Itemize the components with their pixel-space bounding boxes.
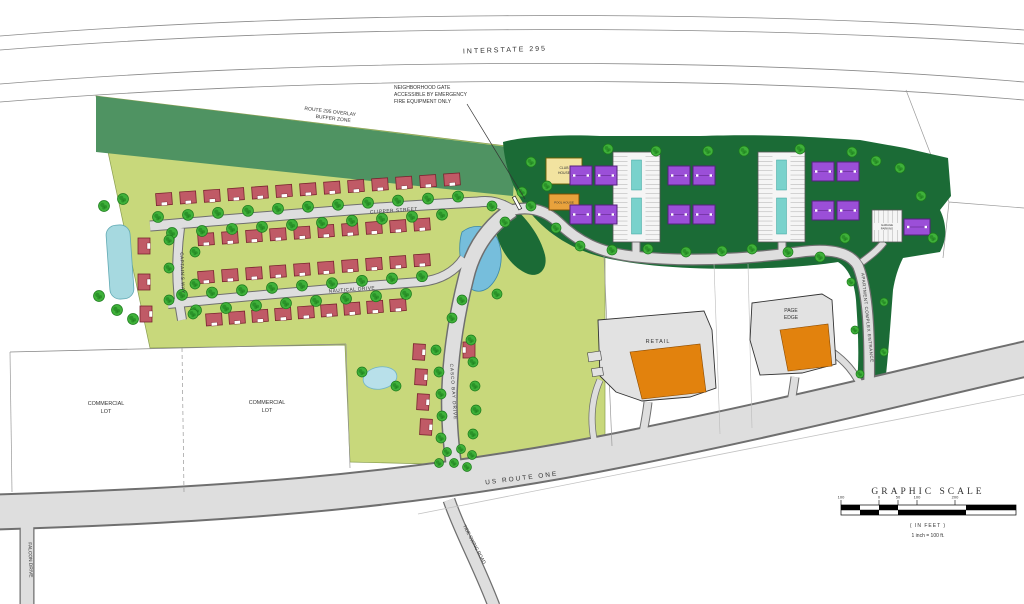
- tree: [526, 201, 536, 211]
- scale-tick-0: 100: [838, 495, 845, 500]
- garage-label-2: PARKING: [881, 227, 893, 231]
- tree: [437, 411, 447, 421]
- tree: [112, 305, 123, 316]
- tree: [153, 211, 164, 222]
- clubhouse-label-2: HOUSE: [558, 171, 571, 175]
- label-page-edge-1: PAGE: [784, 308, 798, 314]
- house: [229, 311, 246, 325]
- scale-bar: [841, 505, 1016, 515]
- tree: [847, 147, 857, 157]
- tree: [221, 302, 232, 313]
- tree: [717, 246, 727, 256]
- label-commercial-lot-2b: LOT: [262, 408, 273, 414]
- apartment-building: [837, 162, 859, 181]
- tree: [434, 367, 444, 377]
- tree: [681, 247, 691, 257]
- pool-house-label: POOL HOUSE: [554, 201, 574, 205]
- tree: [333, 199, 344, 210]
- house: [298, 306, 315, 320]
- house: [372, 178, 389, 192]
- tree: [815, 252, 825, 262]
- house: [204, 189, 221, 203]
- tree: [281, 298, 292, 309]
- tree: [371, 291, 382, 302]
- house: [138, 274, 151, 290]
- tree: [190, 279, 200, 289]
- tree: [237, 285, 248, 296]
- house: [318, 261, 335, 275]
- apartment-building: [904, 219, 930, 235]
- house: [252, 309, 269, 323]
- tree: [783, 247, 793, 257]
- apartment-building: [570, 166, 592, 185]
- tree: [651, 146, 661, 156]
- tree: [401, 288, 412, 299]
- tree: [436, 433, 446, 443]
- tree: [287, 219, 298, 230]
- house: [140, 306, 153, 322]
- tree: [303, 201, 314, 212]
- parking-lot-garage: GARAGE PARKING: [872, 210, 902, 242]
- house: [252, 186, 269, 200]
- tide-swing-road: [449, 500, 494, 604]
- tree: [526, 157, 536, 167]
- tree: [227, 223, 238, 234]
- house: [321, 304, 338, 318]
- tree: [128, 314, 139, 325]
- tree: [928, 233, 938, 243]
- house: [275, 307, 292, 321]
- house: [198, 270, 215, 284]
- scale-tick-2: 50: [896, 495, 901, 500]
- tree: [164, 263, 174, 273]
- site-plan-page: GARAGE PARKING CLUB HOUSE POOL HOUSE INT…: [0, 0, 1024, 604]
- apartment-building: [812, 162, 834, 181]
- tree: [466, 335, 476, 345]
- house: [138, 238, 151, 254]
- label-falcon-drive: FALCON DRIVE: [26, 542, 33, 577]
- tree: [468, 429, 478, 439]
- tree: [453, 191, 464, 202]
- tree: [190, 247, 200, 257]
- house: [390, 299, 407, 313]
- pond-west: [105, 224, 134, 299]
- tree: [450, 459, 459, 468]
- tree: [257, 221, 268, 232]
- house: [324, 181, 341, 195]
- tree: [357, 367, 367, 377]
- site-plan-drawing: GARAGE PARKING CLUB HOUSE POOL HOUSE INT…: [0, 0, 1024, 604]
- shed-2: [591, 367, 603, 376]
- tree: [207, 287, 218, 298]
- tree: [795, 144, 805, 154]
- tree: [243, 205, 254, 216]
- tree: [542, 181, 552, 191]
- house: [390, 220, 407, 234]
- apartment-building: [668, 205, 690, 224]
- tree: [417, 271, 428, 282]
- tree: [363, 197, 374, 208]
- tree: [851, 326, 859, 334]
- tree: [435, 459, 444, 468]
- tree: [188, 309, 198, 319]
- tree: [183, 209, 194, 220]
- tree: [880, 298, 888, 306]
- gate-note-line-1: NEIGHBORHOOD GATE: [394, 85, 451, 91]
- tree: [297, 280, 308, 291]
- scale-ratio: 1 inch = 100 ft.: [912, 533, 945, 539]
- shed-1: [588, 351, 602, 362]
- tree: [871, 156, 881, 166]
- house: [420, 419, 433, 436]
- house: [415, 369, 428, 386]
- tree: [437, 209, 448, 220]
- tree: [470, 381, 480, 391]
- tree: [847, 278, 855, 286]
- house: [367, 300, 384, 314]
- house: [390, 256, 407, 270]
- commercial-buildings: [588, 294, 836, 401]
- tree: [500, 217, 510, 227]
- tree: [856, 370, 864, 378]
- tree: [739, 146, 749, 156]
- tree: [347, 215, 358, 226]
- house: [417, 394, 430, 411]
- house: [246, 267, 263, 281]
- house: [348, 179, 365, 193]
- tree: [468, 357, 478, 367]
- tree: [703, 146, 713, 156]
- tree: [197, 225, 208, 236]
- tree: [164, 235, 174, 245]
- tree: [357, 275, 368, 286]
- gate-note-line-3: FIRE EQUIPMENT ONLY: [394, 99, 452, 105]
- house: [180, 191, 197, 205]
- tree: [463, 463, 472, 472]
- house: [228, 188, 245, 202]
- tree: [267, 282, 278, 293]
- house: [156, 193, 173, 207]
- tree: [551, 223, 561, 233]
- tree: [391, 381, 401, 391]
- label-interstate-295: INTERSTATE 295: [463, 46, 547, 56]
- parking-lot-1: [613, 152, 660, 242]
- tree: [575, 241, 585, 251]
- tree: [603, 144, 613, 154]
- tree: [423, 193, 434, 204]
- tree: [457, 445, 466, 454]
- graphic-scale-title: GRAPHIC SCALE: [871, 487, 984, 497]
- house: [342, 259, 359, 273]
- house: [294, 263, 311, 277]
- tree: [94, 291, 105, 302]
- retail-building-orange-roof: [630, 344, 706, 399]
- scale-in-feet: ( IN FEET ): [910, 523, 946, 529]
- parking-lot-2: [758, 152, 805, 242]
- house: [300, 183, 317, 197]
- house: [270, 265, 287, 279]
- tree: [916, 191, 926, 201]
- tree: [880, 348, 888, 356]
- tree: [447, 313, 457, 323]
- tree: [164, 295, 174, 305]
- apartment-building: [812, 201, 834, 220]
- tree: [643, 244, 653, 254]
- tree: [471, 405, 481, 415]
- house: [420, 175, 437, 189]
- label-commercial-lot-2a: COMMERCIAL: [249, 400, 286, 406]
- tree: [457, 295, 467, 305]
- tree: [387, 273, 398, 284]
- tree: [213, 207, 224, 218]
- label-commercial-lot-1a: COMMERCIAL: [88, 401, 125, 407]
- house: [270, 228, 287, 242]
- page-edge-building-orange-roof: [780, 324, 832, 371]
- apartment-building: [668, 166, 690, 185]
- graphic-scale: GRAPHIC SCALE 100 0 50 100 200 ( IN FEET…: [838, 487, 1016, 539]
- tree: [747, 244, 757, 254]
- tree: [311, 295, 322, 306]
- house: [206, 313, 223, 327]
- house: [414, 254, 431, 268]
- apartment-building: [595, 205, 617, 224]
- tree: [443, 448, 452, 457]
- tree: [317, 217, 328, 228]
- house: [366, 257, 383, 271]
- apartment-building: [595, 166, 617, 185]
- tree: [431, 345, 441, 355]
- clubhouse-label-1: CLUB: [559, 166, 569, 170]
- tree: [607, 245, 617, 255]
- house: [222, 269, 239, 283]
- gate-note-line-2: ACCESSIBLE BY EMERGENCY: [394, 92, 468, 98]
- tree: [118, 194, 129, 205]
- label-retail: RETAIL: [646, 339, 671, 345]
- apartment-building: [693, 205, 715, 224]
- tree: [99, 201, 110, 212]
- tree: [393, 195, 404, 206]
- tree: [327, 278, 338, 289]
- tree: [273, 203, 284, 214]
- house: [276, 184, 293, 198]
- house: [444, 173, 461, 187]
- tree: [895, 163, 905, 173]
- apartment-building: [837, 201, 859, 220]
- scale-tick-4: 200: [952, 495, 959, 500]
- tree: [487, 201, 497, 211]
- tree: [341, 293, 352, 304]
- tree: [468, 451, 477, 460]
- apartment-building: [693, 166, 715, 185]
- apartment-building: [570, 205, 592, 224]
- house: [413, 344, 426, 361]
- tree: [436, 389, 446, 399]
- scale-tick-3: 100: [914, 495, 921, 500]
- label-commercial-lot-1b: LOT: [101, 409, 112, 415]
- house: [396, 176, 413, 190]
- tree: [492, 289, 502, 299]
- tree: [251, 300, 262, 311]
- tree: [840, 233, 850, 243]
- interstate-295-corridor: [0, 16, 1024, 102]
- label-page-edge-2: EDGE: [784, 315, 799, 321]
